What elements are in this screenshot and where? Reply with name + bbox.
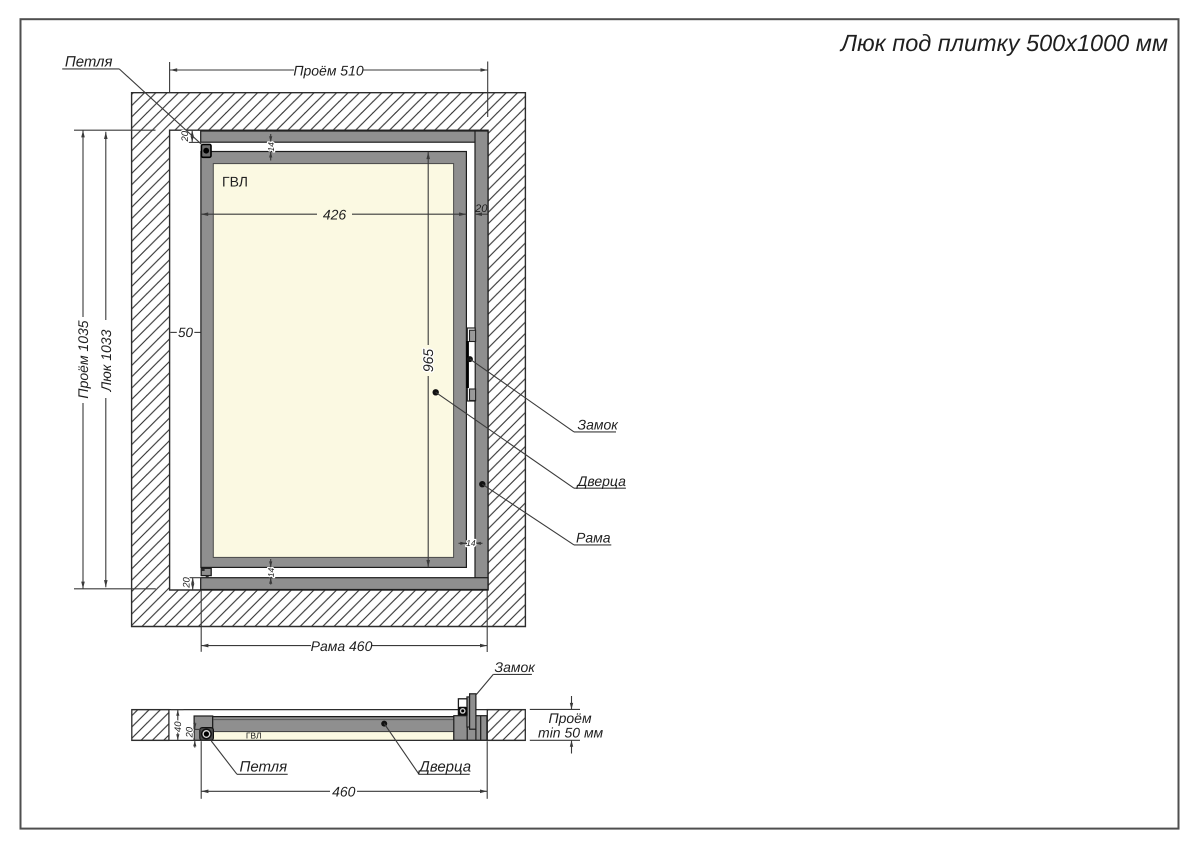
svg-text:20: 20 xyxy=(184,726,195,738)
svg-text:Петля: Петля xyxy=(239,759,287,776)
svg-text:Люк под плитку 500х1000 мм: Люк под плитку 500х1000 мм xyxy=(839,30,1168,56)
svg-text:14: 14 xyxy=(266,142,276,152)
svg-text:20: 20 xyxy=(180,130,191,142)
svg-text:Петля: Петля xyxy=(65,53,113,70)
svg-text:20: 20 xyxy=(182,577,193,589)
svg-text:Рама 460: Рама 460 xyxy=(311,638,373,654)
svg-text:Люк 1033: Люк 1033 xyxy=(98,329,114,392)
svg-text:14: 14 xyxy=(466,538,476,548)
svg-text:14: 14 xyxy=(266,568,276,578)
svg-text:Проём: Проём xyxy=(548,710,592,726)
svg-text:40: 40 xyxy=(173,721,184,732)
svg-text:ГВЛ: ГВЛ xyxy=(246,731,262,741)
svg-text:20: 20 xyxy=(474,203,488,215)
svg-text:Проём 510: Проём 510 xyxy=(293,62,364,78)
svg-text:426: 426 xyxy=(323,207,347,223)
svg-text:Дверца: Дверца xyxy=(417,759,471,776)
svg-text:50: 50 xyxy=(178,325,194,340)
svg-text:Замок: Замок xyxy=(495,659,537,675)
svg-text:965: 965 xyxy=(420,349,436,373)
svg-text:Дверца: Дверца xyxy=(576,473,627,489)
svg-text:Замок: Замок xyxy=(578,417,620,433)
svg-text:Рама: Рама xyxy=(576,530,611,546)
svg-text:min 50 мм: min 50 мм xyxy=(538,725,604,741)
svg-text:Проём 1035: Проём 1035 xyxy=(75,320,91,398)
svg-text:460: 460 xyxy=(332,784,356,800)
svg-text:ГВЛ: ГВЛ xyxy=(222,174,248,190)
